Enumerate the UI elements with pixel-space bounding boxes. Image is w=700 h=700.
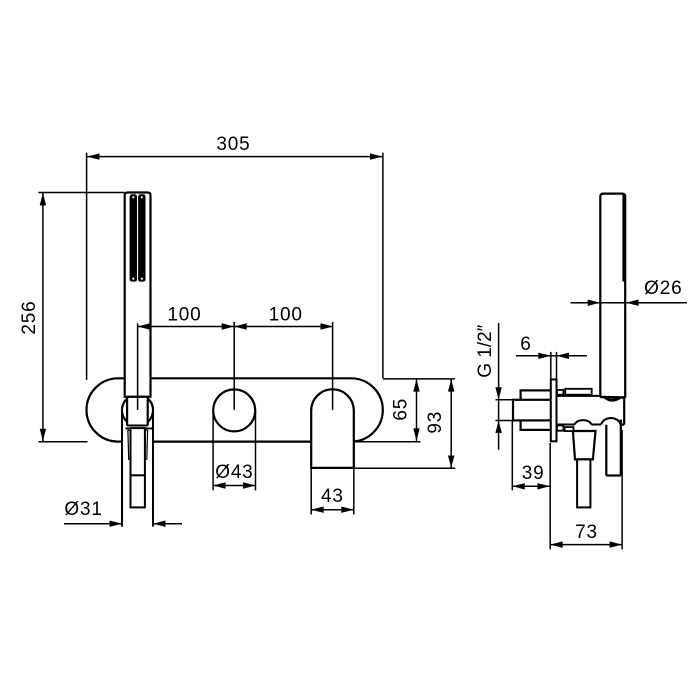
svg-text:43: 43 (321, 486, 344, 507)
svg-text:93: 93 (425, 411, 446, 434)
svg-text:39: 39 (522, 463, 545, 484)
svg-text:73: 73 (575, 522, 598, 543)
svg-text:305: 305 (216, 134, 250, 155)
svg-text:6: 6 (520, 334, 531, 355)
svg-text:256: 256 (19, 301, 40, 335)
svg-text:65: 65 (391, 398, 412, 421)
svg-text:Ø43: Ø43 (215, 462, 253, 483)
svg-text:100: 100 (167, 304, 201, 325)
svg-text:G 1/2″: G 1/2″ (475, 324, 496, 377)
svg-text:100: 100 (269, 304, 303, 325)
svg-text:Ø26: Ø26 (644, 278, 682, 299)
svg-text:Ø31: Ø31 (64, 499, 102, 520)
